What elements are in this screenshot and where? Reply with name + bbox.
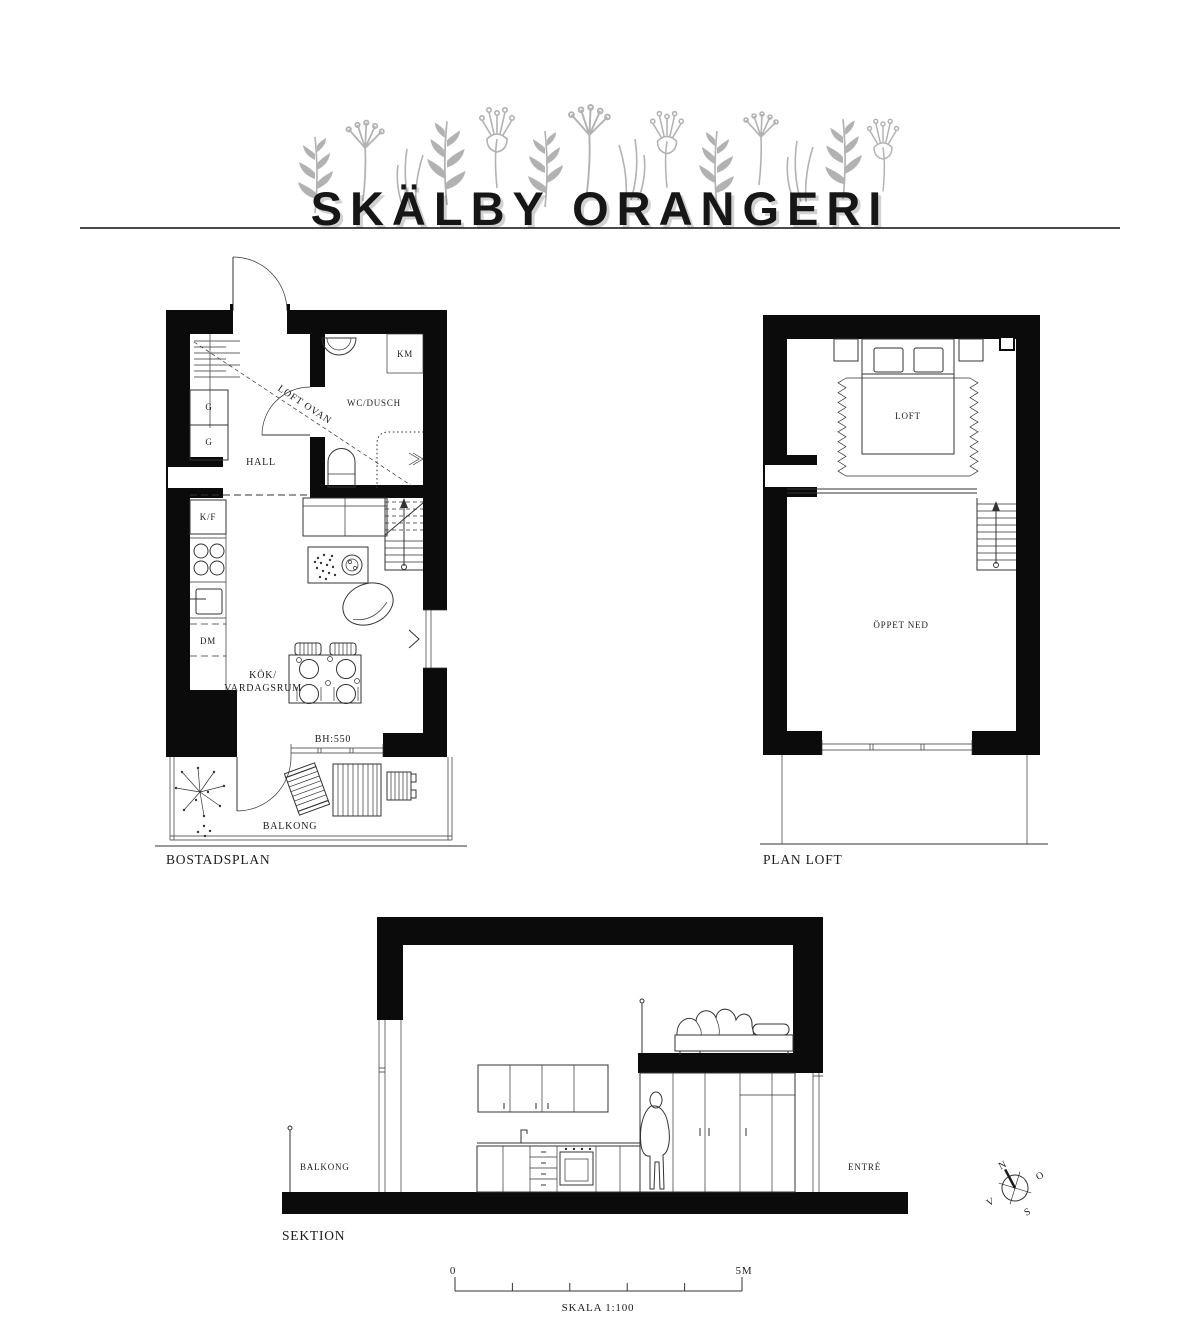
plan-loft-title: PLAN LOFT bbox=[763, 852, 843, 867]
person-figure bbox=[640, 1092, 669, 1189]
entry-door bbox=[230, 257, 290, 311]
kok-vardagsrum-label: KÖK/ VARDAGSRUM bbox=[224, 669, 302, 694]
scale-bar: 0 5M SKALA 1:100 bbox=[430, 1255, 770, 1320]
loft-label: LOFT bbox=[895, 411, 921, 421]
loft-south-window bbox=[822, 740, 972, 755]
balcony-plant bbox=[175, 767, 225, 837]
dishwasher: DM bbox=[190, 624, 226, 656]
wardrobes: G G bbox=[190, 390, 228, 460]
loft-rug bbox=[838, 378, 978, 476]
balcony-outline-below bbox=[760, 755, 1048, 844]
page-title: SKÄLBY ORANGERI bbox=[0, 181, 1200, 236]
entre-label: ENTRÉ bbox=[848, 1162, 881, 1172]
bostadsplan-drawing: LOFT OVAN G G HALL KM WC/DUSCH bbox=[150, 240, 480, 880]
balcony-table bbox=[333, 764, 381, 816]
sektion-drawing: BALKONG ENTRÉ SEKTION bbox=[265, 905, 925, 1250]
section-glass-east bbox=[813, 1073, 823, 1192]
south-window bbox=[291, 744, 383, 757]
stairs-up bbox=[385, 497, 423, 570]
loft-ovan-label: LOFT OVAN bbox=[275, 383, 333, 426]
dm-label: DM bbox=[200, 636, 216, 646]
compass-s-label: S bbox=[1023, 1206, 1034, 1219]
section-balcony: BALKONG bbox=[288, 1126, 350, 1192]
side-window bbox=[409, 610, 447, 668]
svg-text:VARDAGSRUM: VARDAGSRUM bbox=[224, 683, 302, 694]
lounge-chair bbox=[284, 763, 329, 815]
loft-bed-elevation bbox=[675, 1009, 793, 1055]
toilet bbox=[328, 449, 355, 488]
oppet-ned-label: ÖPPET NED bbox=[873, 620, 928, 630]
upper-cabinets bbox=[478, 1065, 608, 1112]
compass-w-label: V bbox=[985, 1196, 997, 1209]
fridge-label: K/F bbox=[200, 512, 216, 522]
scale-end-label: 5M bbox=[736, 1265, 753, 1277]
wc-label: WC/DUSCH bbox=[347, 398, 401, 408]
km-label: KM bbox=[397, 349, 413, 359]
faucet bbox=[521, 1130, 527, 1143]
coat-rack bbox=[194, 334, 240, 428]
nightstand-right bbox=[959, 339, 983, 361]
sektion-title: SEKTION bbox=[282, 1228, 345, 1243]
compass-n-label: N bbox=[997, 1159, 1009, 1172]
balkong-label: BALKONG bbox=[263, 821, 318, 832]
loft-bed: LOFT bbox=[862, 339, 954, 454]
stove bbox=[194, 544, 224, 575]
plan-loft-drawing: LOFT ÖPPET NED PLAN LOFT bbox=[745, 300, 1065, 880]
loft-above-line: LOFT OVAN bbox=[194, 342, 412, 486]
balcony-door bbox=[237, 757, 291, 811]
compass-e-label: O bbox=[1034, 1169, 1046, 1182]
wc-room: KM WC/DUSCH bbox=[262, 334, 423, 488]
dining-chair-back bbox=[295, 643, 321, 655]
garderob-2-label: G bbox=[205, 437, 212, 447]
table-plant bbox=[314, 554, 336, 580]
hall-label: HALL bbox=[246, 457, 276, 468]
window-height-label: BH:550 bbox=[315, 734, 351, 745]
coffee-table bbox=[308, 547, 368, 583]
svg-text:KÖK/: KÖK/ bbox=[249, 669, 277, 681]
garderob-1-label: G bbox=[205, 402, 212, 412]
balcony: BALKONG bbox=[155, 757, 467, 846]
shower bbox=[377, 432, 423, 488]
loft-edge-railing bbox=[640, 999, 644, 1053]
armchair bbox=[336, 575, 400, 633]
balcony-chair bbox=[387, 772, 416, 800]
compass-icon: N O S V bbox=[965, 1140, 1065, 1240]
dining-set bbox=[289, 643, 361, 704]
oven bbox=[560, 1148, 593, 1185]
bostadsplan-title: BOSTADSPLAN bbox=[166, 852, 271, 867]
nightstand-left bbox=[834, 339, 858, 361]
scale-caption: SKALA 1:100 bbox=[562, 1302, 635, 1314]
section-balkong-label: BALKONG bbox=[300, 1162, 350, 1172]
section-glass-west bbox=[379, 1020, 401, 1192]
sofa bbox=[303, 498, 387, 536]
scale-start-label: 0 bbox=[450, 1265, 456, 1277]
floorplan-sheet: SKÄLBY ORANGERI bbox=[0, 0, 1200, 1320]
kitchen-sink bbox=[190, 589, 222, 614]
dining-chair-back bbox=[330, 643, 356, 655]
loft-walls bbox=[763, 315, 1040, 755]
kitchen-run: K/F DM bbox=[190, 500, 226, 690]
loft-stairs bbox=[977, 498, 1016, 570]
kitchen-counter bbox=[477, 1130, 640, 1192]
